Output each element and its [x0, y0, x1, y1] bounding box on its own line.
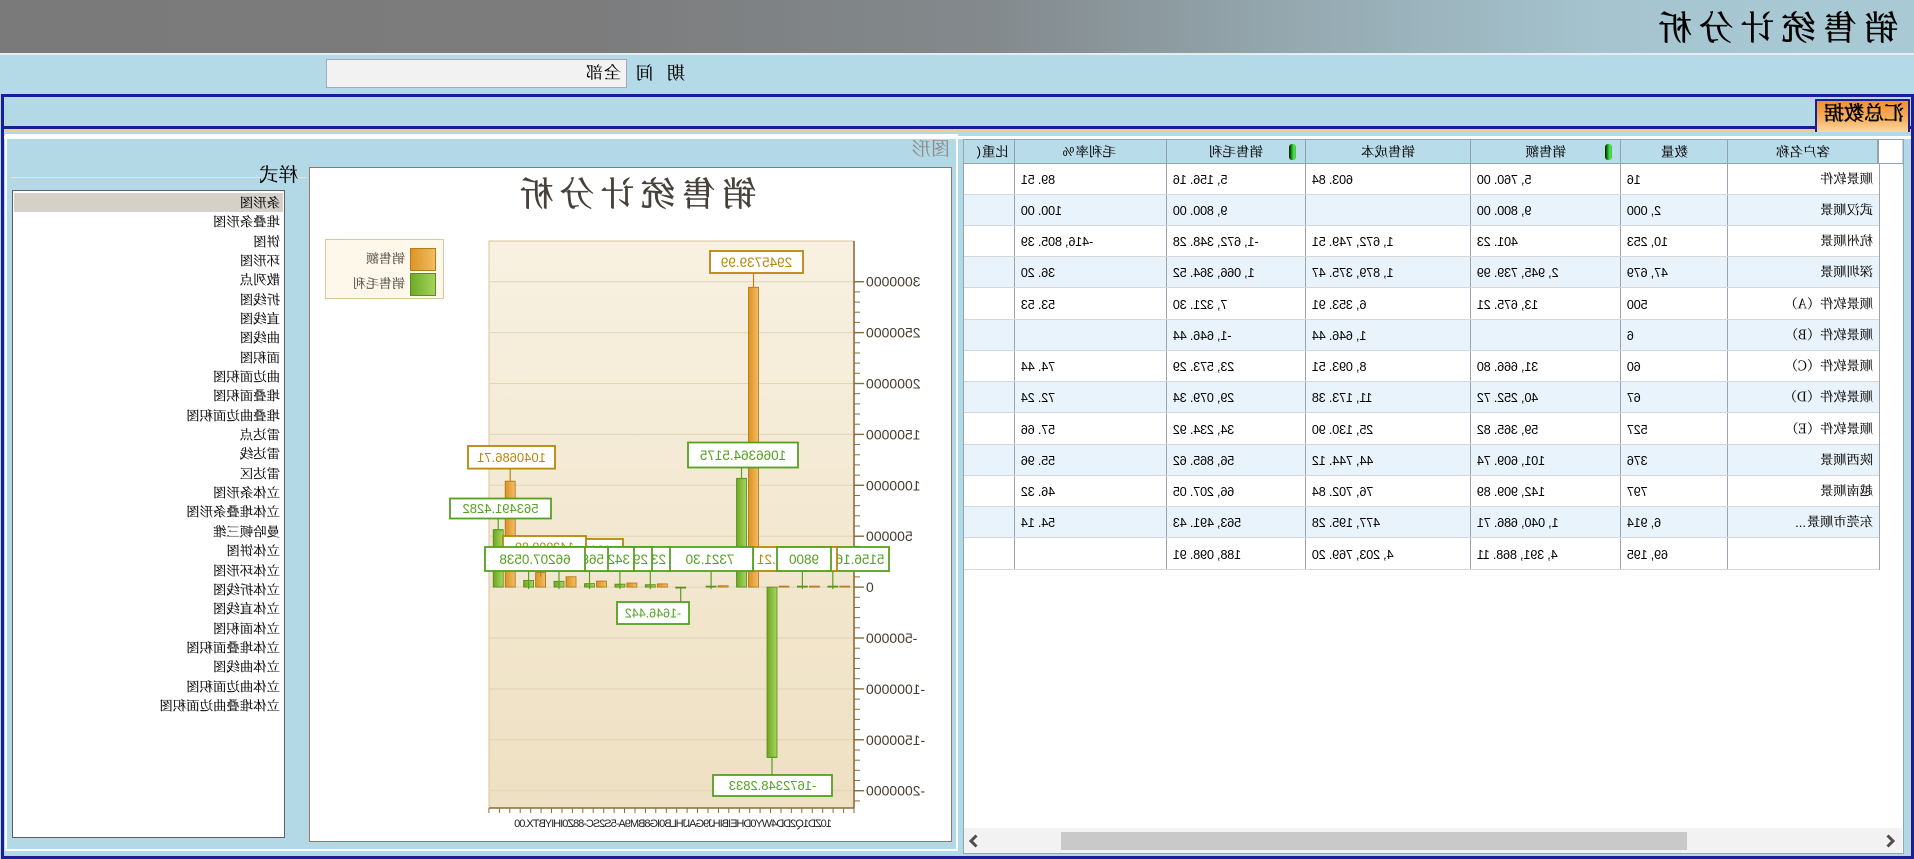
svg-text:9800: 9800 — [789, 552, 819, 567]
svg-text:2000000: 2000000 — [866, 376, 921, 392]
svg-text:1040686.71: 1040686.71 — [477, 450, 546, 465]
svg-text:-2000000: -2000000 — [866, 783, 925, 799]
svg-text:0: 0 — [866, 579, 874, 595]
svg-text:1066364.5175: 1066364.5175 — [700, 448, 786, 463]
svg-text:500000: 500000 — [866, 528, 913, 544]
svg-text:-1672348.2833: -1672348.2833 — [729, 778, 816, 793]
svg-text:2500000: 2500000 — [866, 325, 921, 341]
svg-text:563491.4282: 563491.4282 — [463, 501, 539, 516]
svg-text:-1000000: -1000000 — [866, 681, 925, 697]
svg-text:1500000: 1500000 — [866, 426, 921, 442]
svg-text:-500000: -500000 — [866, 630, 918, 646]
svg-text:10ZD1Q2DD4WY0DHEIBIHJ9GAIJHLB0: 10ZD1Q2DD4WY0DHEIBIHJ9GAIJHLB0IG8BM9A-5S… — [514, 818, 832, 830]
svg-text:3000000: 3000000 — [866, 274, 921, 290]
svg-text:-1646.442: -1646.442 — [625, 607, 681, 621]
svg-text:2945739.99: 2945739.99 — [721, 255, 792, 270]
svg-text:5156.16: 5156.16 — [836, 552, 885, 567]
svg-text:66207.0538: 66207.0538 — [499, 552, 570, 567]
svg-text:1000000: 1000000 — [866, 477, 921, 493]
svg-text:7321.30: 7321.30 — [686, 552, 735, 567]
svg-text:-1500000: -1500000 — [866, 732, 925, 748]
